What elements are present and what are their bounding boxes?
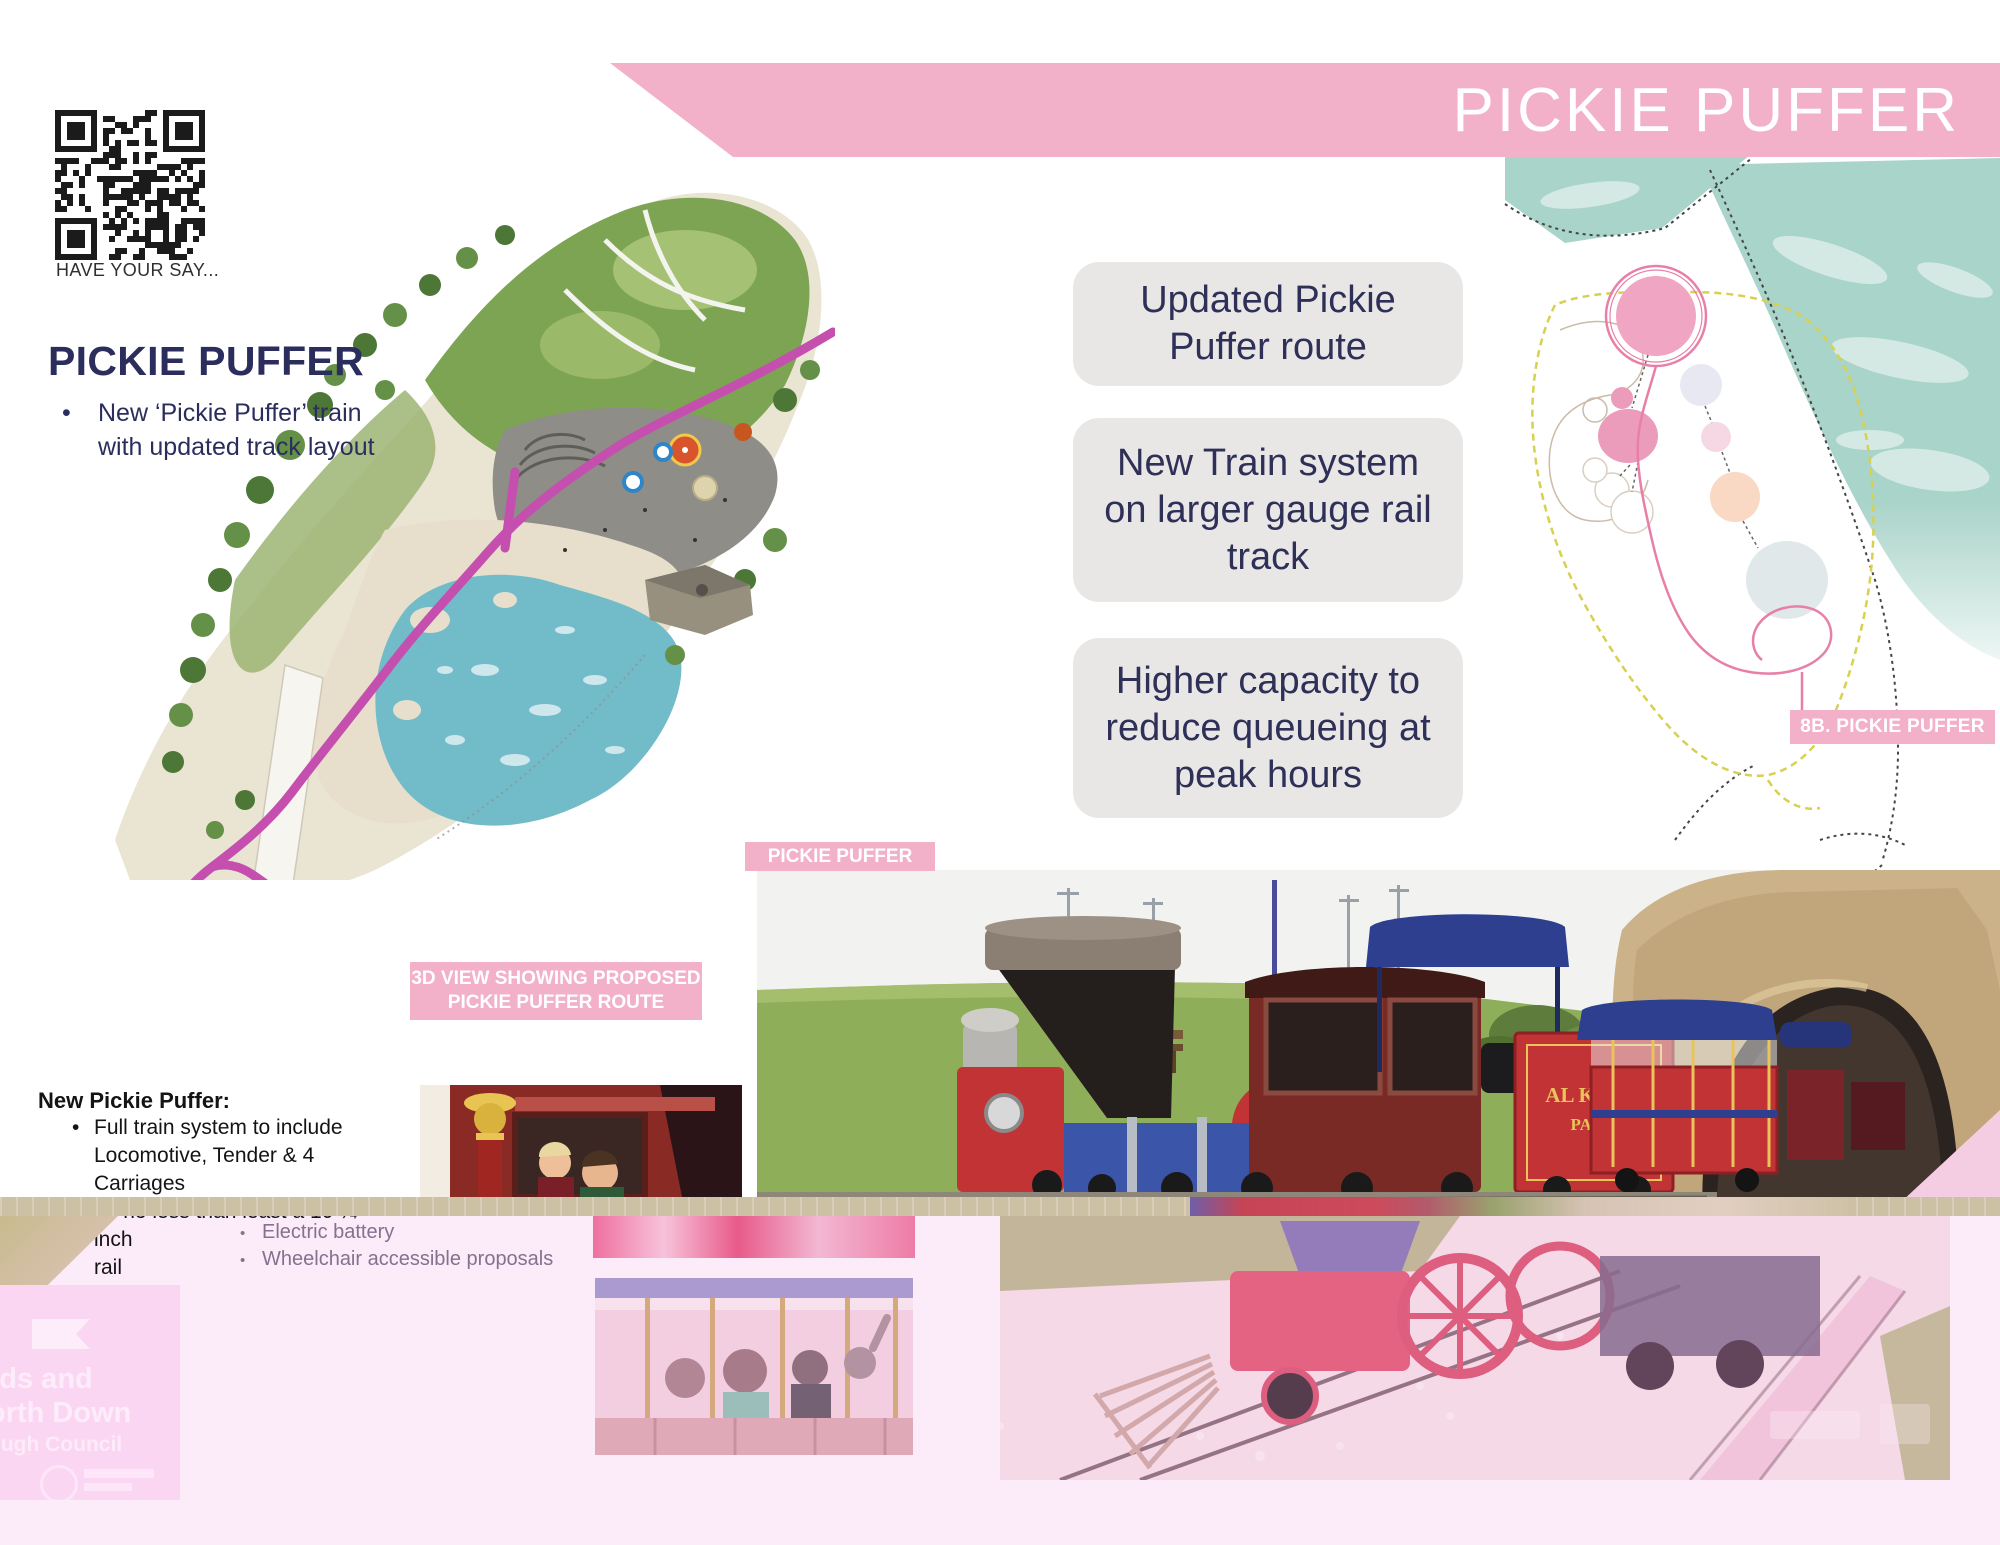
intro-bullet-line1: New ‘Pickie Puffer’ train [98, 396, 392, 430]
council-logo-line3: ough Council [0, 1433, 122, 1457]
info-box-route: Updated Pickie Puffer route [1073, 262, 1463, 386]
page-banner: PICKIE PUFFER [600, 63, 2000, 157]
details-bullet-2: Locomotive, Tender & 4 Carriages [72, 1142, 398, 1198]
intro-bullet-line2: with updated track layout [98, 430, 392, 464]
bullet-dot: • [62, 396, 71, 430]
page-title: PICKIE PUFFER [1452, 75, 1960, 146]
council-flag-icon [32, 1319, 90, 1349]
qr-caption: HAVE YOUR SAY... [56, 260, 219, 281]
extra-bullet-1: Electric battery [238, 1219, 553, 1246]
divider-bar-photo-patch [1190, 1197, 1848, 1216]
photo-tag-text: PICKIE PUFFER [768, 846, 913, 868]
partner-logo-bar2 [84, 1483, 132, 1491]
partner-emblem-icon [40, 1465, 78, 1500]
train-photo: AL KHOR PARK [757, 870, 2000, 1215]
info-box-capacity-text: Higher capacity to reduce queueing at pe… [1099, 658, 1437, 799]
extra-bullet-2: Wheelchair accessible proposals [238, 1246, 553, 1273]
info-box-train-system-text: New Train system on larger gauge rail tr… [1099, 440, 1437, 581]
info-box-train-system: New Train system on larger gauge rail tr… [1073, 418, 1463, 602]
tinted-train-photo [1000, 1216, 1950, 1480]
view-tag: 3D VIEW SHOWING PROPOSEDPICKIE PUFFER RO… [410, 962, 702, 1020]
partner-logo-bar [84, 1469, 154, 1478]
info-box-route-text: Updated Pickie Puffer route [1099, 277, 1437, 371]
council-logo-line1: rds and [0, 1363, 93, 1396]
qr-code [55, 110, 205, 260]
map-tag: 8B. PICKIE PUFFER [1790, 710, 1995, 744]
intro-bullet: • New ‘Pickie Puffer’ train with updated… [62, 396, 392, 464]
section-heading: PICKIE PUFFER [48, 338, 364, 385]
extra-bullets: Electric battery Wheelchair accessible p… [238, 1219, 553, 1273]
view-tag-text: 3D VIEW SHOWING PROPOSEDPICKIE PUFFER RO… [411, 967, 700, 1015]
tinted-photo-fragment [593, 1216, 915, 1258]
children-train-photo [595, 1278, 913, 1455]
consultation-board: PICKIE PUFFER HAVE YOUR SAY... PICKIE PU… [0, 0, 2000, 1545]
photo-tag: PICKIE PUFFER [745, 842, 935, 871]
map-tag-text: 8B. PICKIE PUFFER [1800, 716, 1985, 738]
council-logo-box: rds and orth Down ough Council [0, 1285, 180, 1500]
site-plan-map [1500, 140, 2000, 885]
kids-window-photo [420, 1085, 742, 1197]
info-box-capacity: Higher capacity to reduce queueing at pe… [1073, 638, 1463, 818]
details-heading: New Pickie Puffer: [38, 1088, 398, 1114]
council-logo-line2: orth Down [0, 1397, 131, 1430]
details-bullet-1: Full train system to include [72, 1114, 398, 1142]
